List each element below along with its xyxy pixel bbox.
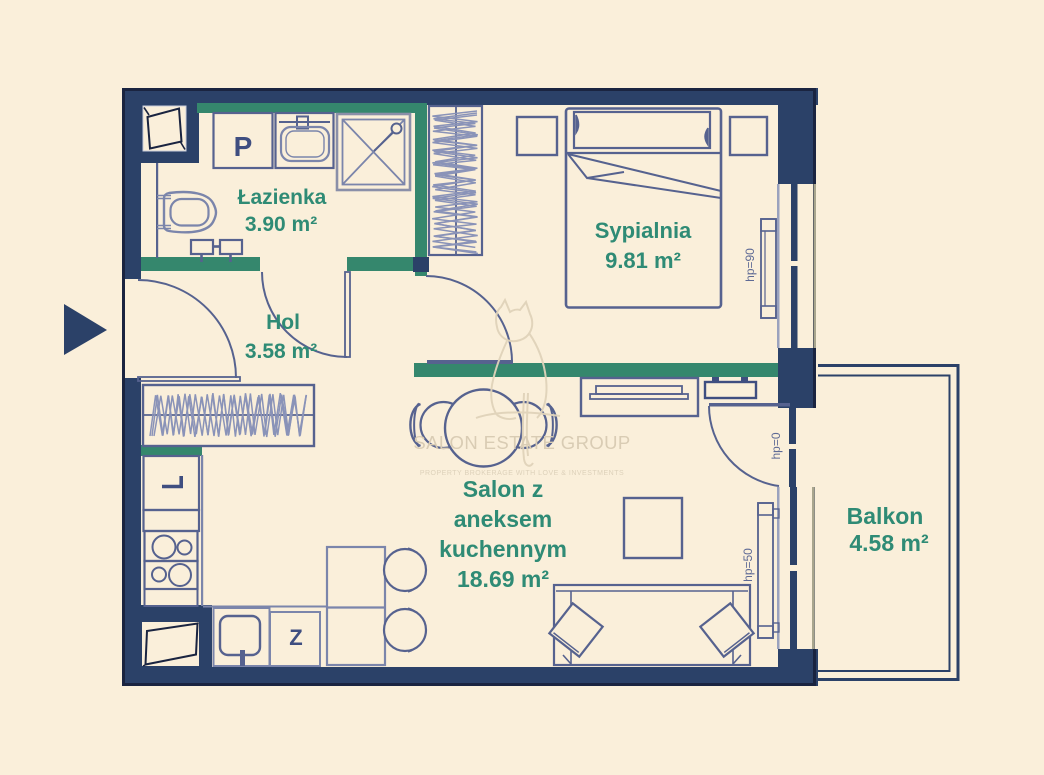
svg-text:9.81 m²: 9.81 m² [605, 248, 681, 273]
svg-text:3.90 m²: 3.90 m² [245, 213, 317, 236]
svg-text:hp=0: hp=0 [769, 432, 783, 459]
svg-text:aneksem: aneksem [454, 506, 552, 532]
svg-text:4.58 m²: 4.58 m² [849, 530, 929, 556]
svg-text:Salon z: Salon z [463, 476, 544, 502]
svg-text:3.58 m²: 3.58 m² [245, 340, 317, 363]
svg-text:SALON ESTATE GROUP: SALON ESTATE GROUP [413, 432, 630, 453]
svg-text:Sypialnia: Sypialnia [595, 218, 692, 243]
svg-text:18.69 m²: 18.69 m² [457, 566, 549, 592]
svg-text:Łazienka: Łazienka [238, 186, 327, 209]
svg-text:hp=50: hp=50 [741, 548, 755, 582]
svg-text:Balkon: Balkon [847, 503, 924, 529]
svg-text:Hol: Hol [266, 311, 300, 334]
svg-text:PROPERTY BROKERAGE WITH LOVE &: PROPERTY BROKERAGE WITH LOVE & INVESTMEN… [420, 470, 624, 477]
svg-text:P: P [234, 131, 253, 162]
svg-text:kuchennym: kuchennym [439, 536, 567, 562]
svg-text:Z: Z [289, 625, 302, 650]
svg-text:hp=90: hp=90 [743, 248, 757, 282]
